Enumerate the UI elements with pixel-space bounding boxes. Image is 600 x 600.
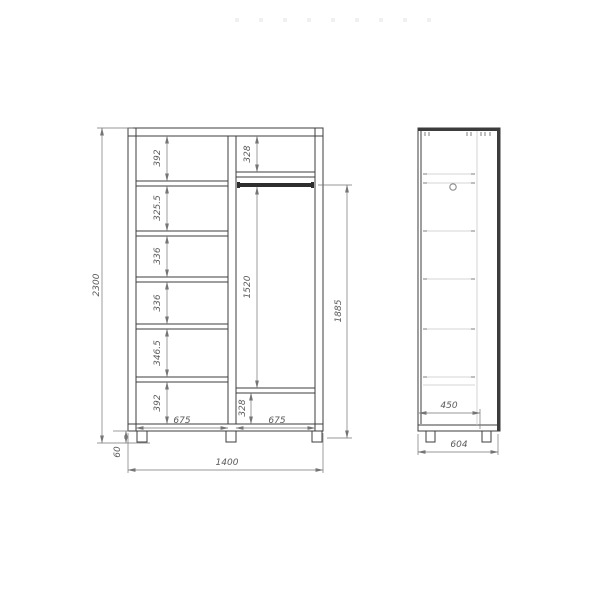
dim-label-cell-6: 392 — [153, 394, 163, 411]
dim-label-overall-height: 2300 — [92, 273, 102, 296]
dim-label-cell-3: 336 — [153, 247, 163, 264]
dot — [307, 18, 311, 22]
side-top-panel — [418, 128, 500, 131]
leg — [226, 431, 236, 442]
dim-label-overall-width: 1400 — [216, 458, 239, 468]
dot — [379, 18, 383, 22]
rod-end-left — [237, 182, 240, 188]
dot — [355, 18, 359, 22]
dot — [403, 18, 407, 22]
dim-label-rod-to-base: 1885 — [334, 299, 344, 322]
side-outline — [418, 128, 500, 431]
leg — [426, 431, 435, 442]
dot — [331, 18, 335, 22]
dim-label-depth-inner: 450 — [440, 401, 457, 411]
dim-label-cell-5: 346.5 — [153, 340, 163, 366]
wardrobe-technical-drawing: 2300 60 392 325.5 336 336 346.5 392 328 … — [0, 0, 600, 600]
shelf — [136, 324, 228, 329]
shelf — [236, 172, 315, 177]
shelf — [136, 181, 228, 186]
dim-label-depth-overall: 604 — [450, 440, 467, 450]
dot — [259, 18, 263, 22]
shelf — [136, 231, 228, 236]
dot — [235, 18, 239, 22]
dim-label-cell-1: 392 — [153, 149, 163, 166]
dim-label-cell-2: 325.5 — [153, 195, 163, 221]
dim-label-right-width: 675 — [268, 416, 285, 426]
dot — [427, 18, 431, 22]
dim-label-top-cell: 328 — [243, 145, 253, 162]
side-front-panel — [497, 128, 500, 431]
rod-bar — [238, 183, 313, 187]
shelf — [236, 388, 315, 393]
dim-label-plinth-height: 60 — [113, 446, 123, 458]
watermark-dots — [235, 18, 431, 22]
side-view-drawing — [418, 128, 500, 442]
dot — [283, 18, 287, 22]
leg — [137, 431, 147, 442]
shelf — [136, 277, 228, 282]
drawing-canvas: 2300 60 392 325.5 336 336 346.5 392 328 … — [0, 0, 600, 600]
center-partition — [228, 136, 236, 424]
leg — [312, 431, 322, 442]
dim-label-hanging-height: 1520 — [243, 275, 253, 298]
dim-label-left-width: 675 — [173, 416, 190, 426]
leg — [482, 431, 491, 442]
shelf — [136, 377, 228, 382]
rod-end-right — [311, 182, 314, 188]
dim-label-cell-4: 336 — [153, 294, 163, 311]
dim-label-bottom-cell: 328 — [238, 399, 248, 416]
